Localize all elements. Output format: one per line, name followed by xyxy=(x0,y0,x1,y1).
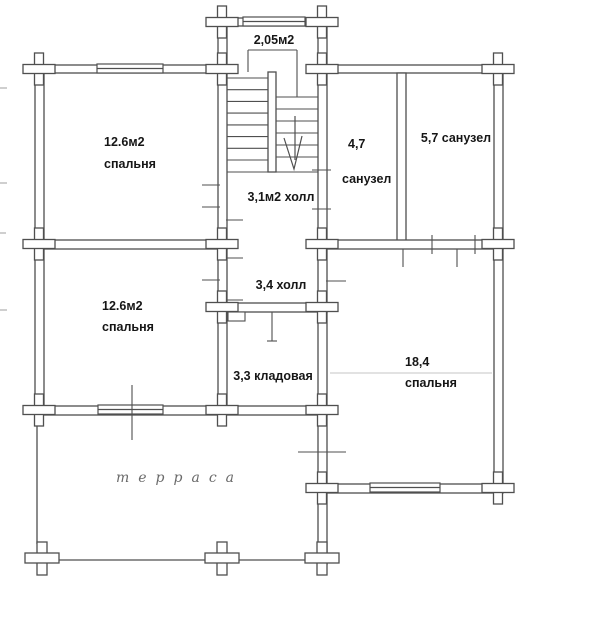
room-label-hall-lower: 3,4 холл xyxy=(256,278,307,293)
room-label-bedroom-mid-left: 12.6м2 спальня xyxy=(102,296,154,338)
room-name-bedroom-top-left: спальня xyxy=(104,153,156,175)
terrace-corner-crosses xyxy=(25,542,339,575)
room-name-bedroom-mid-left: спальня xyxy=(102,317,154,338)
room-label-hall-upper: 3,1м2 холл xyxy=(248,190,315,205)
plan-linework xyxy=(0,0,604,630)
room-area-bedroom-mid-left: 12.6м2 xyxy=(102,296,154,317)
room-label-bathroom-large: 5,7 санузел xyxy=(421,131,491,146)
scan-artifacts xyxy=(0,88,492,373)
room-label-bedroom-large: 18,4 спальня xyxy=(405,352,457,394)
terrace-walls xyxy=(36,414,320,560)
room-name-bathroom-small: санузел xyxy=(342,172,391,187)
stairs-direction-arrow xyxy=(284,116,302,169)
room-area-bathroom-small: 4,7 xyxy=(348,137,365,152)
room-label-stairs-area: 2,05м2 xyxy=(254,33,295,48)
room-area-bedroom-large: 18,4 xyxy=(405,352,457,373)
staircase xyxy=(227,50,318,172)
room-label-bedroom-top-left: 12.6м2 спальня xyxy=(104,131,156,175)
room-label-storage: 3,3 кладовая xyxy=(233,369,313,384)
room-label-terrace: терраса xyxy=(116,470,243,486)
room-area-bedroom-top-left: 12.6м2 xyxy=(104,131,156,153)
room-name-bedroom-large: спальня xyxy=(405,373,457,394)
floor-plan-canvas: 2,05м2 12.6м2 спальня 3,1м2 холл 4,7 сан… xyxy=(0,0,604,630)
